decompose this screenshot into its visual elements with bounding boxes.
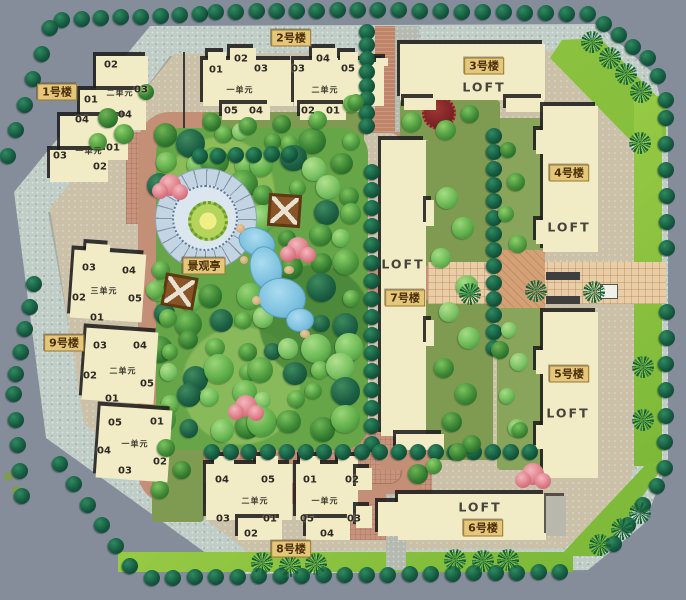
building1-label: 1号楼 xyxy=(37,84,77,101)
unit-number-label: 02 xyxy=(104,60,118,71)
text-layer: 二单元一单元一单元二单元二单元一单元三单元二单元一单元0203010404010… xyxy=(0,0,686,600)
building5-label: 5号楼 xyxy=(549,366,589,383)
unit-number-label: 03 xyxy=(216,514,230,525)
unit-number-label: 02 xyxy=(72,293,86,304)
unit-number-label: 01 xyxy=(326,106,340,117)
building7-label: 7号楼 xyxy=(385,290,425,307)
unit-number-label: 05 xyxy=(108,418,122,429)
unit-number-label: 04 xyxy=(118,110,132,121)
unit-number-label: 05 xyxy=(261,475,275,486)
unit-name-label: 二单元 xyxy=(110,366,137,377)
building2-label: 2号楼 xyxy=(271,30,311,47)
unit-number-label: 04 xyxy=(215,475,229,486)
building3-label: 3号楼 xyxy=(464,58,504,75)
unit-number-label: 03 xyxy=(53,151,67,162)
building6-label: 6号楼 xyxy=(463,520,503,537)
unit-number-label: 02 xyxy=(153,457,167,468)
unit-number-label: 01 xyxy=(263,514,277,525)
building8-label: 8号楼 xyxy=(271,541,311,558)
unit-number-label: 04 xyxy=(122,266,136,277)
unit-number-label: 01 xyxy=(209,65,223,76)
unit-number-label: 05 xyxy=(224,106,238,117)
unit-number-label: 05 xyxy=(128,294,142,305)
unit-number-label: 04 xyxy=(133,341,147,352)
unit-number-label: 03 xyxy=(291,64,305,75)
unit-name-label: 三单元 xyxy=(91,286,118,297)
unit-number-label: 04 xyxy=(320,529,334,540)
unit-number-label: 02 xyxy=(234,54,248,65)
unit-number-label: 01 xyxy=(84,95,98,106)
building6-loft-label: LOFT xyxy=(458,500,501,515)
unit-number-label: 01 xyxy=(150,417,164,428)
unit-name-label: 一单元 xyxy=(76,146,103,157)
building7-loft-label: LOFT xyxy=(381,257,424,272)
unit-number-label: 01 xyxy=(105,394,119,405)
unit-name-label: 一单元 xyxy=(227,85,254,96)
unit-number-label: 04 xyxy=(249,106,263,117)
building4-label: 4号楼 xyxy=(549,165,589,182)
building5-loft-label: LOFT xyxy=(546,406,589,421)
unit-number-label: 05 xyxy=(140,379,154,390)
unit-number-label: 02 xyxy=(83,371,97,382)
pavilion-label: 景观亭 xyxy=(183,258,226,275)
unit-name-label: 一单元 xyxy=(122,439,149,450)
unit-number-label: 01 xyxy=(106,143,120,154)
unit-number-label: 03 xyxy=(82,263,96,274)
unit-number-label: 01 xyxy=(90,313,104,324)
building4-loft-label: LOFT xyxy=(547,220,590,235)
unit-number-label: 01 xyxy=(303,475,317,486)
building9-label: 9号楼 xyxy=(44,335,84,352)
unit-number-label: 03 xyxy=(254,64,268,75)
unit-name-label: 二单元 xyxy=(312,85,339,96)
unit-name-label: 二单元 xyxy=(242,496,269,507)
unit-number-label: 02 xyxy=(244,529,258,540)
building3-loft-label: LOFT xyxy=(462,80,505,95)
unit-number-label: 03 xyxy=(118,466,132,477)
unit-number-label: 02 xyxy=(93,162,107,173)
site-plan-canvas: 二单元一单元一单元二单元二单元一单元三单元二单元一单元0203010404010… xyxy=(0,0,686,600)
unit-number-label: 03 xyxy=(347,514,361,525)
unit-number-label: 04 xyxy=(75,115,89,126)
unit-name-label: 一单元 xyxy=(312,496,339,507)
unit-number-label: 04 xyxy=(97,446,111,457)
unit-number-label: 05 xyxy=(300,514,314,525)
unit-number-label: 02 xyxy=(301,106,315,117)
unit-number-label: 04 xyxy=(316,54,330,65)
unit-number-label: 02 xyxy=(345,475,359,486)
unit-number-label: 03 xyxy=(93,341,107,352)
unit-number-label: 03 xyxy=(134,85,148,96)
unit-name-label: 二单元 xyxy=(107,88,134,99)
unit-number-label: 05 xyxy=(341,64,355,75)
